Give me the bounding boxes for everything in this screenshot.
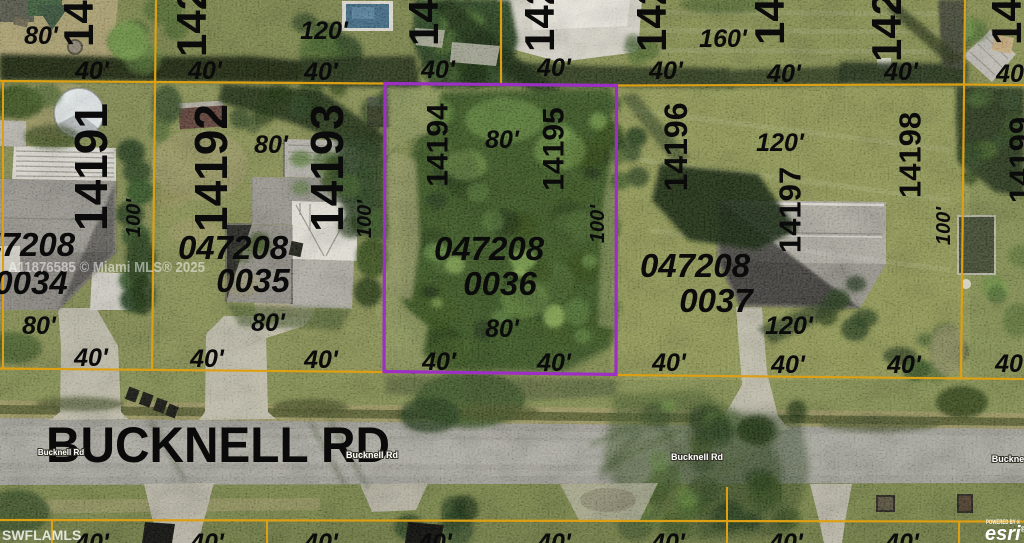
svg-text:14191: 14191 xyxy=(65,103,117,231)
svg-text:120': 120' xyxy=(300,17,349,45)
svg-text:100': 100' xyxy=(354,199,376,238)
svg-text:40': 40' xyxy=(303,346,339,374)
svg-text:120': 120' xyxy=(765,312,814,340)
svg-text:142: 142 xyxy=(516,0,563,52)
svg-text:40': 40' xyxy=(420,56,456,84)
svg-text:40': 40' xyxy=(886,351,922,379)
svg-text:40': 40' xyxy=(994,350,1024,378)
svg-text:14199: 14199 xyxy=(1003,117,1024,203)
svg-text:40': 40' xyxy=(303,58,339,86)
svg-text:40': 40' xyxy=(536,54,572,82)
svg-text:047208: 047208 xyxy=(0,226,76,263)
svg-text:40': 40' xyxy=(766,60,802,88)
svg-text:80': 80' xyxy=(24,22,59,50)
svg-text:14196: 14196 xyxy=(658,103,694,192)
svg-text:40': 40' xyxy=(421,348,457,376)
svg-text:40': 40' xyxy=(651,349,687,377)
svg-text:Bucknell Rd: Bucknell Rd xyxy=(671,452,723,462)
svg-text:40': 40' xyxy=(189,345,225,373)
svg-text:40': 40' xyxy=(995,60,1024,88)
svg-text:100': 100' xyxy=(933,206,955,245)
svg-text:80': 80' xyxy=(251,309,286,337)
svg-text:80': 80' xyxy=(485,126,520,154)
svg-text:40': 40' xyxy=(883,58,919,86)
svg-text:142: 142 xyxy=(863,0,910,62)
svg-text:14192: 14192 xyxy=(185,104,237,232)
svg-text:BUCKNELL RD: BUCKNELL RD xyxy=(46,417,390,473)
svg-text:142: 142 xyxy=(746,0,793,45)
svg-text:A11876585 © Miami MLS® 2025: A11876585 © Miami MLS® 2025 xyxy=(8,259,205,276)
svg-text:14197: 14197 xyxy=(773,167,808,253)
svg-text:40': 40' xyxy=(74,57,110,85)
svg-text:esri®: esri® xyxy=(985,523,1024,543)
svg-text:40': 40' xyxy=(189,529,225,543)
svg-text:40': 40' xyxy=(417,529,453,543)
svg-text:142: 142 xyxy=(168,0,215,57)
svg-text:80': 80' xyxy=(22,312,57,340)
svg-text:80': 80' xyxy=(485,315,520,343)
svg-text:14193: 14193 xyxy=(301,104,353,232)
svg-text:Bucknell Rd: Bucknell Rd xyxy=(346,450,398,460)
svg-text:120': 120' xyxy=(756,129,805,157)
svg-text:Bucknell Rd: Bucknell Rd xyxy=(38,448,84,457)
svg-text:047208: 047208 xyxy=(640,247,751,284)
svg-text:SWFLAMLS: SWFLAMLS xyxy=(2,527,81,543)
svg-text:047208: 047208 xyxy=(434,230,545,267)
svg-text:160': 160' xyxy=(699,25,748,53)
svg-text:40': 40' xyxy=(187,57,223,85)
svg-text:80': 80' xyxy=(254,131,289,159)
svg-text:40': 40' xyxy=(303,529,339,543)
svg-text:14194: 14194 xyxy=(422,103,455,187)
svg-text:40': 40' xyxy=(536,529,572,543)
svg-text:142: 142 xyxy=(55,0,102,47)
svg-text:40': 40' xyxy=(536,349,572,377)
svg-text:40': 40' xyxy=(648,57,684,85)
svg-text:100': 100' xyxy=(123,198,145,237)
svg-text:14198: 14198 xyxy=(893,112,928,198)
svg-text:40': 40' xyxy=(770,351,806,379)
svg-text:0037: 0037 xyxy=(679,282,754,319)
svg-text:40': 40' xyxy=(768,529,804,543)
svg-text:142: 142 xyxy=(400,0,447,46)
svg-text:40': 40' xyxy=(884,529,920,543)
svg-text:40': 40' xyxy=(650,529,686,543)
svg-text:142: 142 xyxy=(983,0,1024,45)
svg-text:14195: 14195 xyxy=(538,107,571,190)
svg-text:100': 100' xyxy=(587,204,609,243)
svg-text:40': 40' xyxy=(73,344,109,372)
svg-text:Buckne: Buckne xyxy=(992,454,1024,464)
svg-text:0036: 0036 xyxy=(463,265,537,302)
svg-text:0035: 0035 xyxy=(216,262,290,299)
svg-text:142: 142 xyxy=(628,0,675,52)
